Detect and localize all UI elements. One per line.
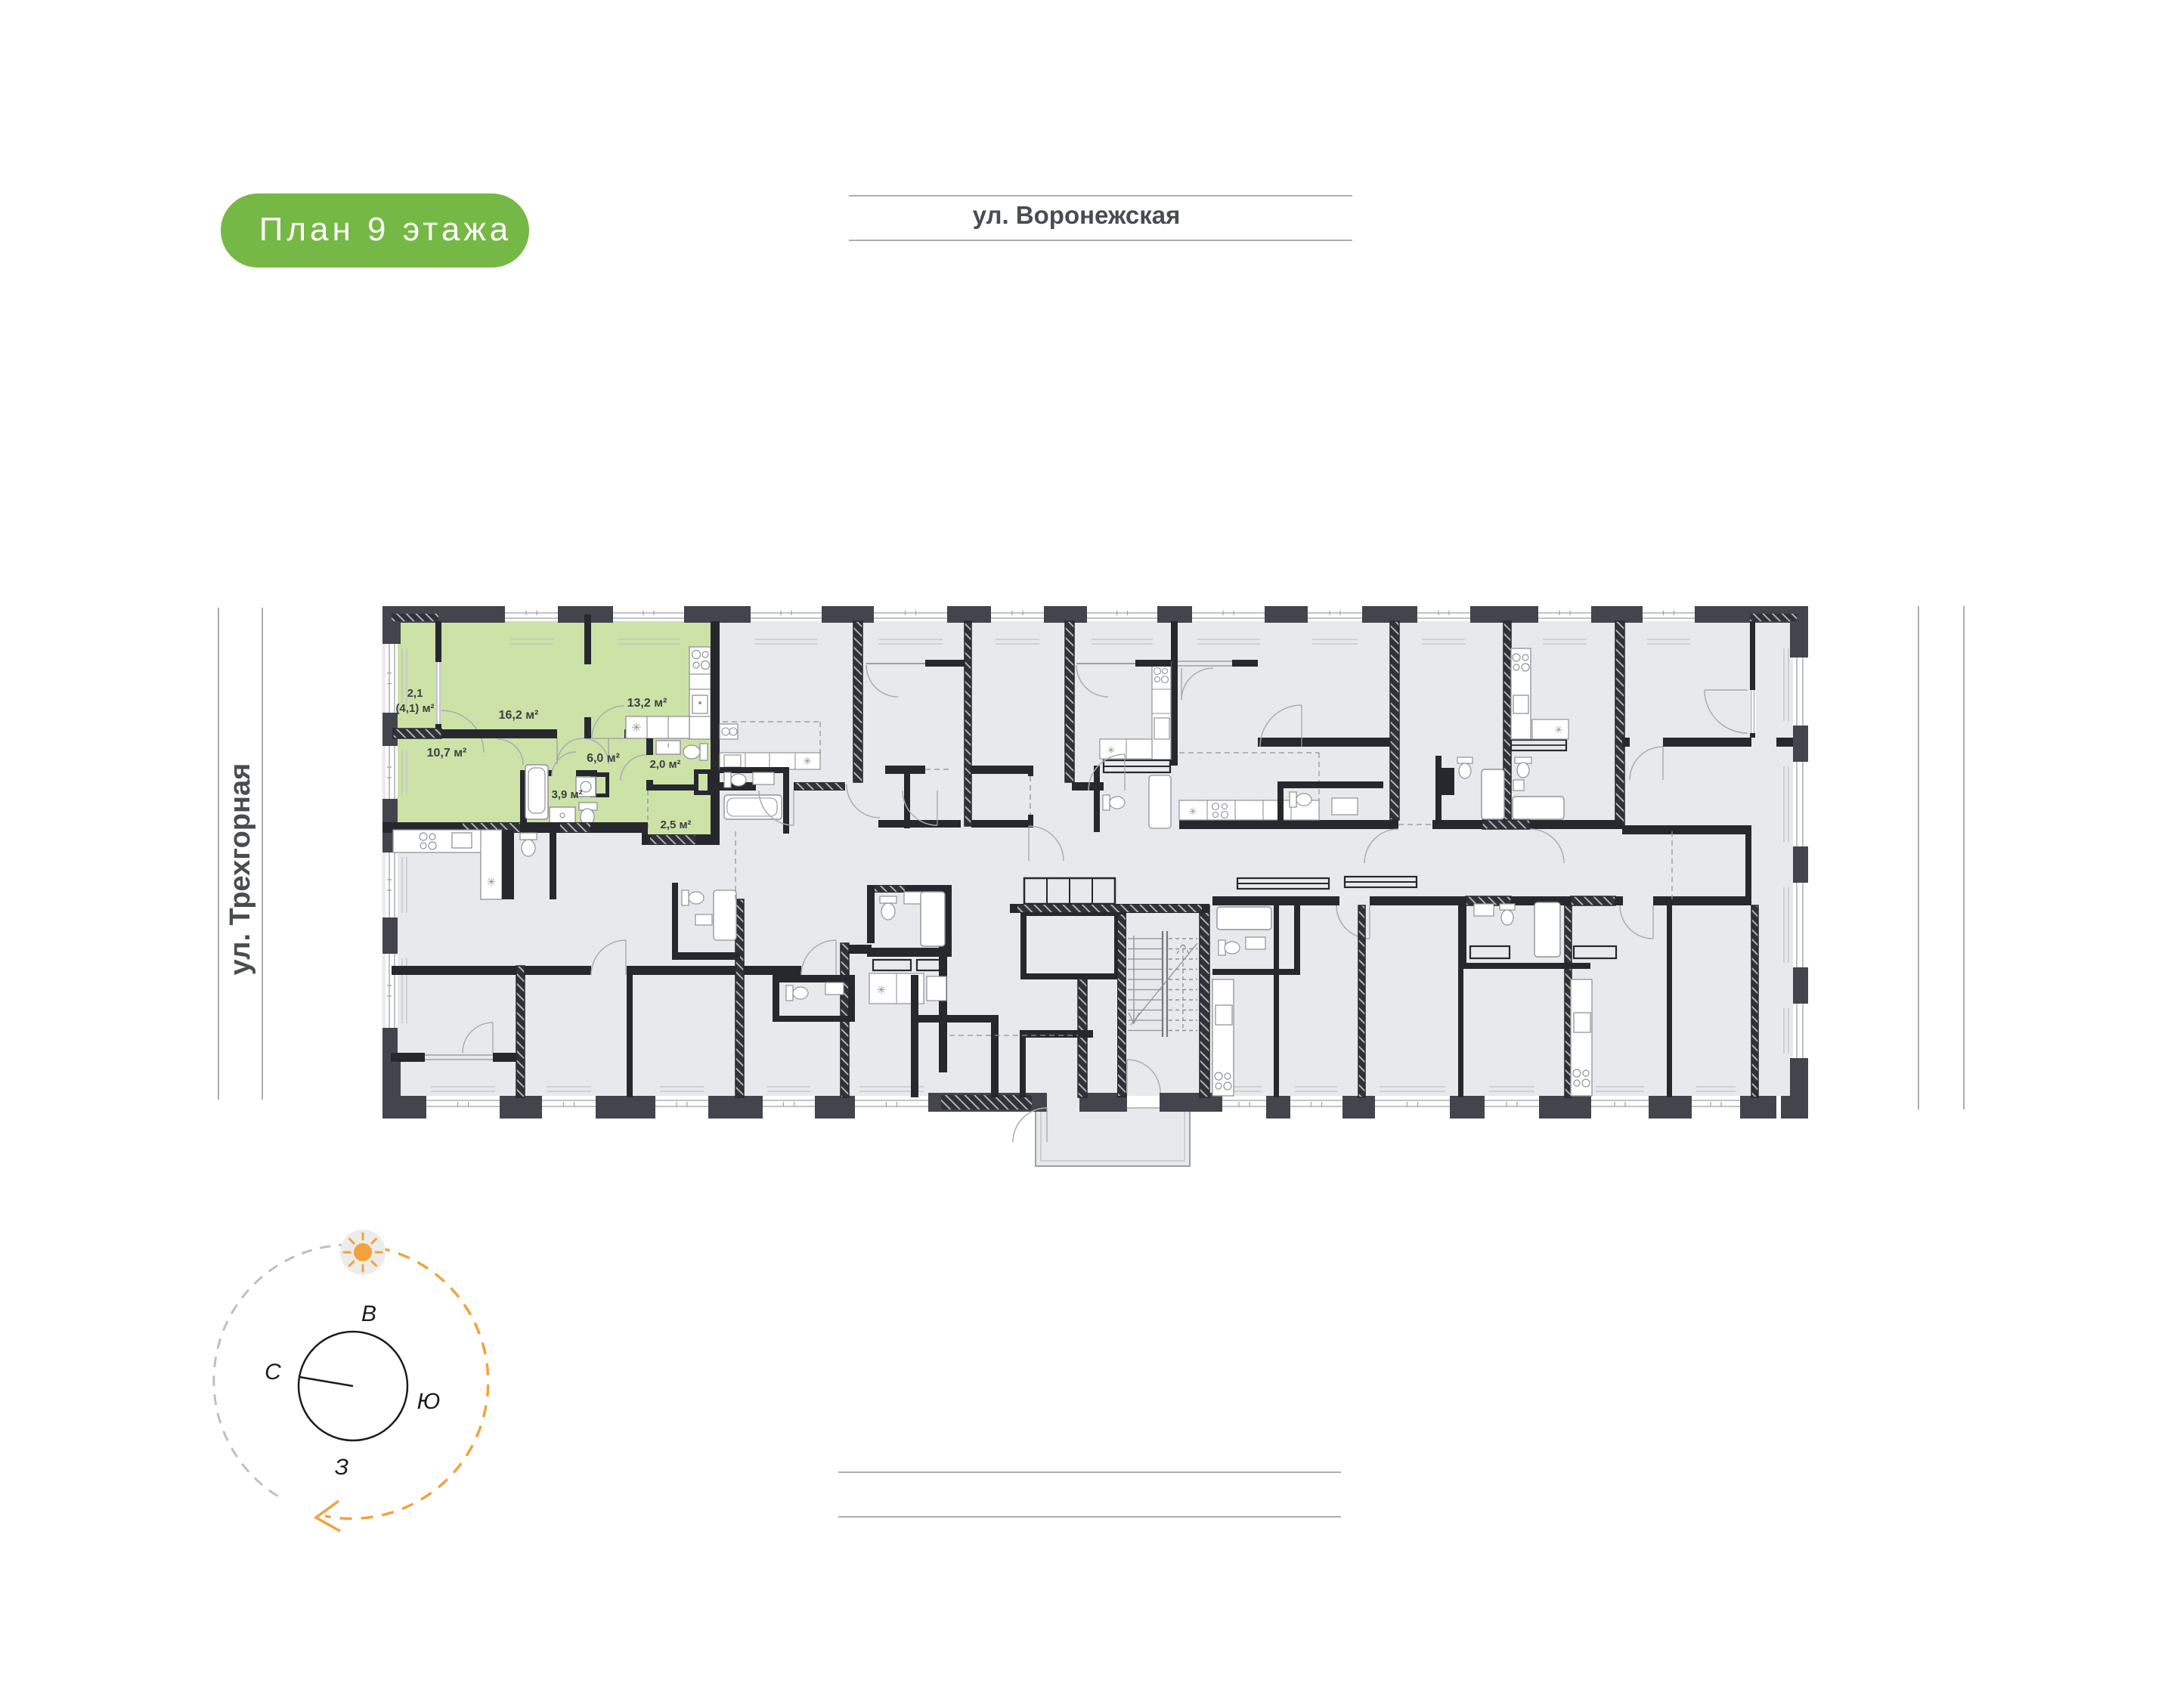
svg-text:6,0 м²: 6,0 м² (587, 752, 620, 765)
svg-text:Ю: Ю (417, 1389, 441, 1414)
svg-text:✳: ✳ (487, 876, 497, 889)
svg-text:✳: ✳ (631, 722, 641, 735)
svg-text:✳: ✳ (1189, 806, 1197, 817)
svg-text:3,9 м²: 3,9 м² (551, 788, 582, 801)
svg-text:2,5 м²: 2,5 м² (660, 818, 691, 831)
svg-text:План 9 этажа: План 9 этажа (259, 211, 513, 248)
svg-text:✳: ✳ (877, 984, 887, 997)
svg-text:ул. Воронежская: ул. Воронежская (973, 201, 1181, 229)
svg-text:ул. Трехгорная: ул. Трехгорная (225, 763, 256, 976)
svg-text:С: С (265, 1360, 281, 1385)
svg-text:13,2 м²: 13,2 м² (627, 697, 667, 710)
svg-text:2,1: 2,1 (407, 687, 423, 700)
svg-text:10,7 м²: 10,7 м² (427, 747, 467, 760)
svg-text:(4,1) м²: (4,1) м² (395, 702, 434, 715)
svg-text:✳: ✳ (1107, 744, 1116, 756)
svg-text:З: З (335, 1455, 348, 1480)
svg-text:✳: ✳ (1555, 724, 1563, 735)
svg-text:✳: ✳ (803, 755, 812, 767)
svg-text:2,0 м²: 2,0 м² (649, 758, 680, 771)
svg-text:В: В (361, 1301, 376, 1326)
svg-text:16,2 м²: 16,2 м² (499, 709, 539, 722)
